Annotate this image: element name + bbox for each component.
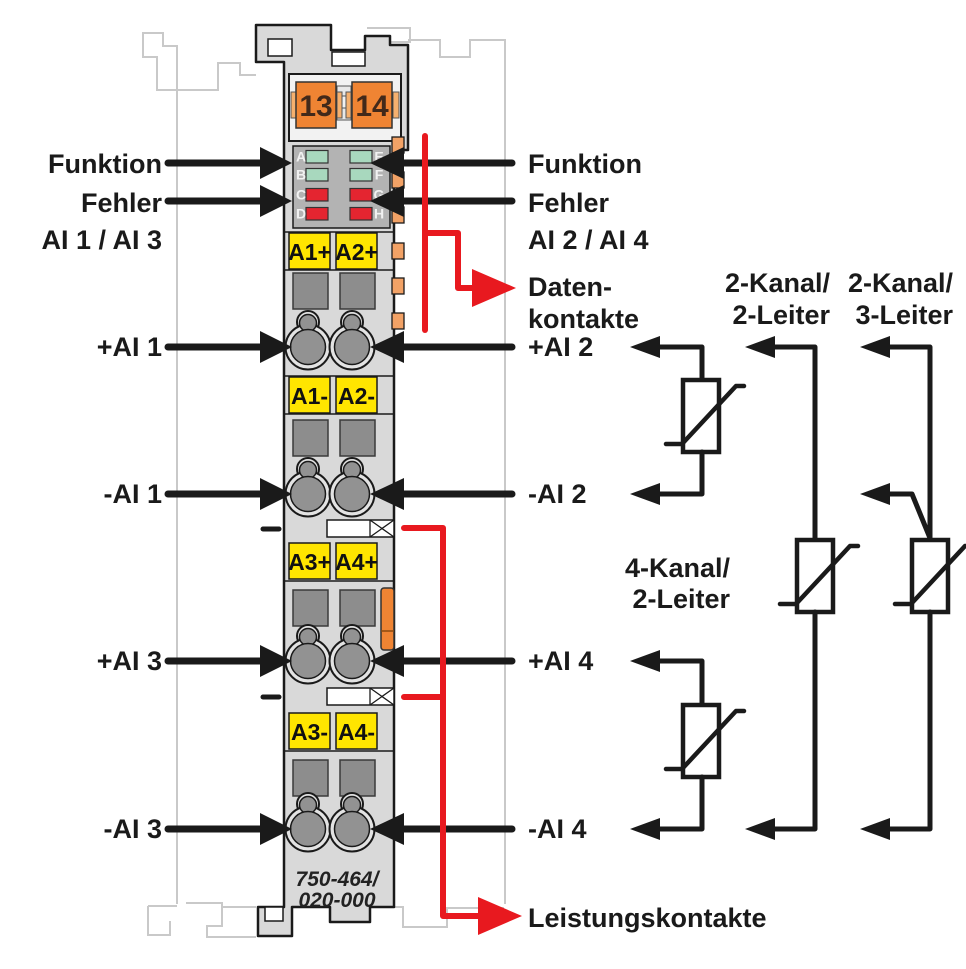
data-contact-tab	[392, 278, 404, 294]
data-contact-tab	[392, 243, 404, 259]
led-letter-h: H	[374, 206, 384, 222]
wire-arrow	[860, 818, 890, 840]
label-plus-ai3: +AI 3	[97, 646, 162, 676]
data-contacts-red-arrowhead	[472, 269, 516, 307]
led-letter-d: D	[296, 206, 306, 222]
two-channel-three-wire-branch	[860, 336, 966, 840]
label-minus-ai4: -AI 4	[528, 814, 587, 844]
contact-square	[340, 760, 375, 796]
contact-square	[340, 273, 375, 309]
third-wire-diagonal	[886, 494, 930, 538]
label-leistungskontakte: Leistungskontakte	[528, 903, 767, 933]
top-slot-notch	[332, 52, 365, 66]
contact-square	[340, 590, 375, 626]
data-contact-tab	[392, 313, 404, 329]
rtd-sensor-symbol	[912, 540, 948, 612]
terminal-label-a3p-text: A3+	[288, 549, 331, 575]
wiring-diagram-page: 13 14 A B C D E F G H	[0, 0, 966, 964]
led-letter-b: B	[296, 167, 306, 183]
led-letter-f: F	[375, 167, 384, 183]
connector-14-latch-right	[393, 92, 399, 118]
label-2kanal-3leiter-line2: 3-Leiter	[855, 300, 953, 330]
wago-750-464-wiring-diagram: 13 14 A B C D E F G H	[0, 0, 966, 964]
contact-square	[293, 273, 328, 309]
terminal-label-a3m-text: A3-	[291, 719, 328, 745]
led-letter-c: C	[296, 187, 306, 203]
sensor-branch-upper	[630, 336, 744, 505]
led-b-green	[306, 169, 328, 182]
label-funktion-right: Funktion	[528, 149, 642, 179]
led-h-red	[350, 208, 372, 221]
release-latch	[381, 588, 394, 650]
label-datenkontakte-line2: kontakte	[528, 304, 639, 334]
contact-square	[293, 420, 328, 456]
label-2kanal-2leiter-line1: 2-Kanal/	[725, 268, 831, 298]
bottom-claw-notch	[265, 907, 283, 921]
terminal-label-a1m-text: A1-	[291, 383, 328, 409]
sensor-branch-lower	[630, 650, 744, 840]
label-fehler-left: Fehler	[81, 188, 163, 218]
left-foot-outline-b	[186, 903, 256, 937]
label-minus-ai1: -AI 1	[103, 479, 162, 509]
connector-13-latch-right	[337, 92, 342, 118]
terminal-label-a2p-text: A2+	[335, 239, 378, 265]
label-fehler-channels-left: AI 1 / AI 3	[41, 225, 162, 255]
contact-square	[293, 590, 328, 626]
left-foot-outline-a	[148, 906, 177, 935]
label-datenkontakte-line1: Daten-	[528, 272, 612, 302]
wire-arrow	[630, 818, 660, 840]
label-2kanal-3leiter-line1: 2-Kanal/	[848, 268, 954, 298]
rtd-sensor-symbol	[683, 705, 719, 777]
latch-body	[381, 588, 394, 650]
label-4kanal-2leiter-line1: 4-Kanal/	[625, 553, 731, 583]
wire-arrow	[745, 818, 775, 840]
led-d-red	[306, 208, 328, 221]
rtd-sensor-symbol	[683, 380, 719, 452]
led-f-green	[350, 169, 372, 182]
label-4kanal-2leiter-line2: 2-Leiter	[632, 584, 730, 614]
label-fehler-right: Fehler	[528, 188, 610, 218]
led-g-red	[350, 189, 372, 202]
connector-14-number: 14	[355, 90, 389, 123]
label-fehler-channels-right: AI 2 / AI 4	[528, 225, 649, 255]
part-number: 750-464/ 020-000	[296, 868, 381, 912]
contact-square	[340, 420, 375, 456]
part-number-line1: 750-464/	[296, 868, 381, 891]
terminal-label-a4p-text: A4+	[335, 549, 378, 575]
led-c-red	[306, 189, 328, 202]
jumper-band-1	[327, 520, 394, 537]
label-plus-ai4: +AI 4	[528, 646, 593, 676]
label-2kanal-2leiter-line2: 2-Leiter	[732, 300, 830, 330]
top-claw-notch	[268, 39, 292, 56]
terminal-label-a4m-text: A4-	[338, 719, 375, 745]
data-contacts-red-branch	[425, 233, 474, 288]
led-letter-a: A	[296, 149, 306, 165]
power-contacts-red-line	[404, 528, 479, 916]
led-panel: A B C D E F G H	[293, 146, 390, 228]
power-contacts-red-arrowhead	[478, 897, 522, 935]
led-a-green	[306, 151, 328, 164]
wire-arrow	[630, 483, 660, 505]
led-e-green	[350, 151, 372, 164]
connector-14-latch-left	[346, 92, 351, 118]
label-minus-ai2: -AI 2	[528, 479, 587, 509]
label-funktion-left: Funktion	[48, 149, 162, 179]
label-minus-ai3: -AI 3	[103, 814, 162, 844]
contact-square	[293, 760, 328, 796]
connector-13-number: 13	[299, 90, 332, 123]
left-callout-arrows	[168, 147, 292, 845]
two-channel-two-wire-branch	[745, 336, 858, 840]
jumper-band-2	[327, 688, 394, 705]
bus-connector-block: 13 14	[289, 74, 401, 141]
label-plus-ai2: +AI 2	[528, 332, 593, 362]
terminal-label-a1p-text: A1+	[288, 239, 331, 265]
rtd-sensor-symbol	[797, 540, 833, 612]
part-number-line2: 020-000	[298, 889, 375, 912]
terminal-label-a2m-text: A2-	[338, 383, 375, 409]
label-plus-ai1: +AI 1	[97, 332, 162, 362]
